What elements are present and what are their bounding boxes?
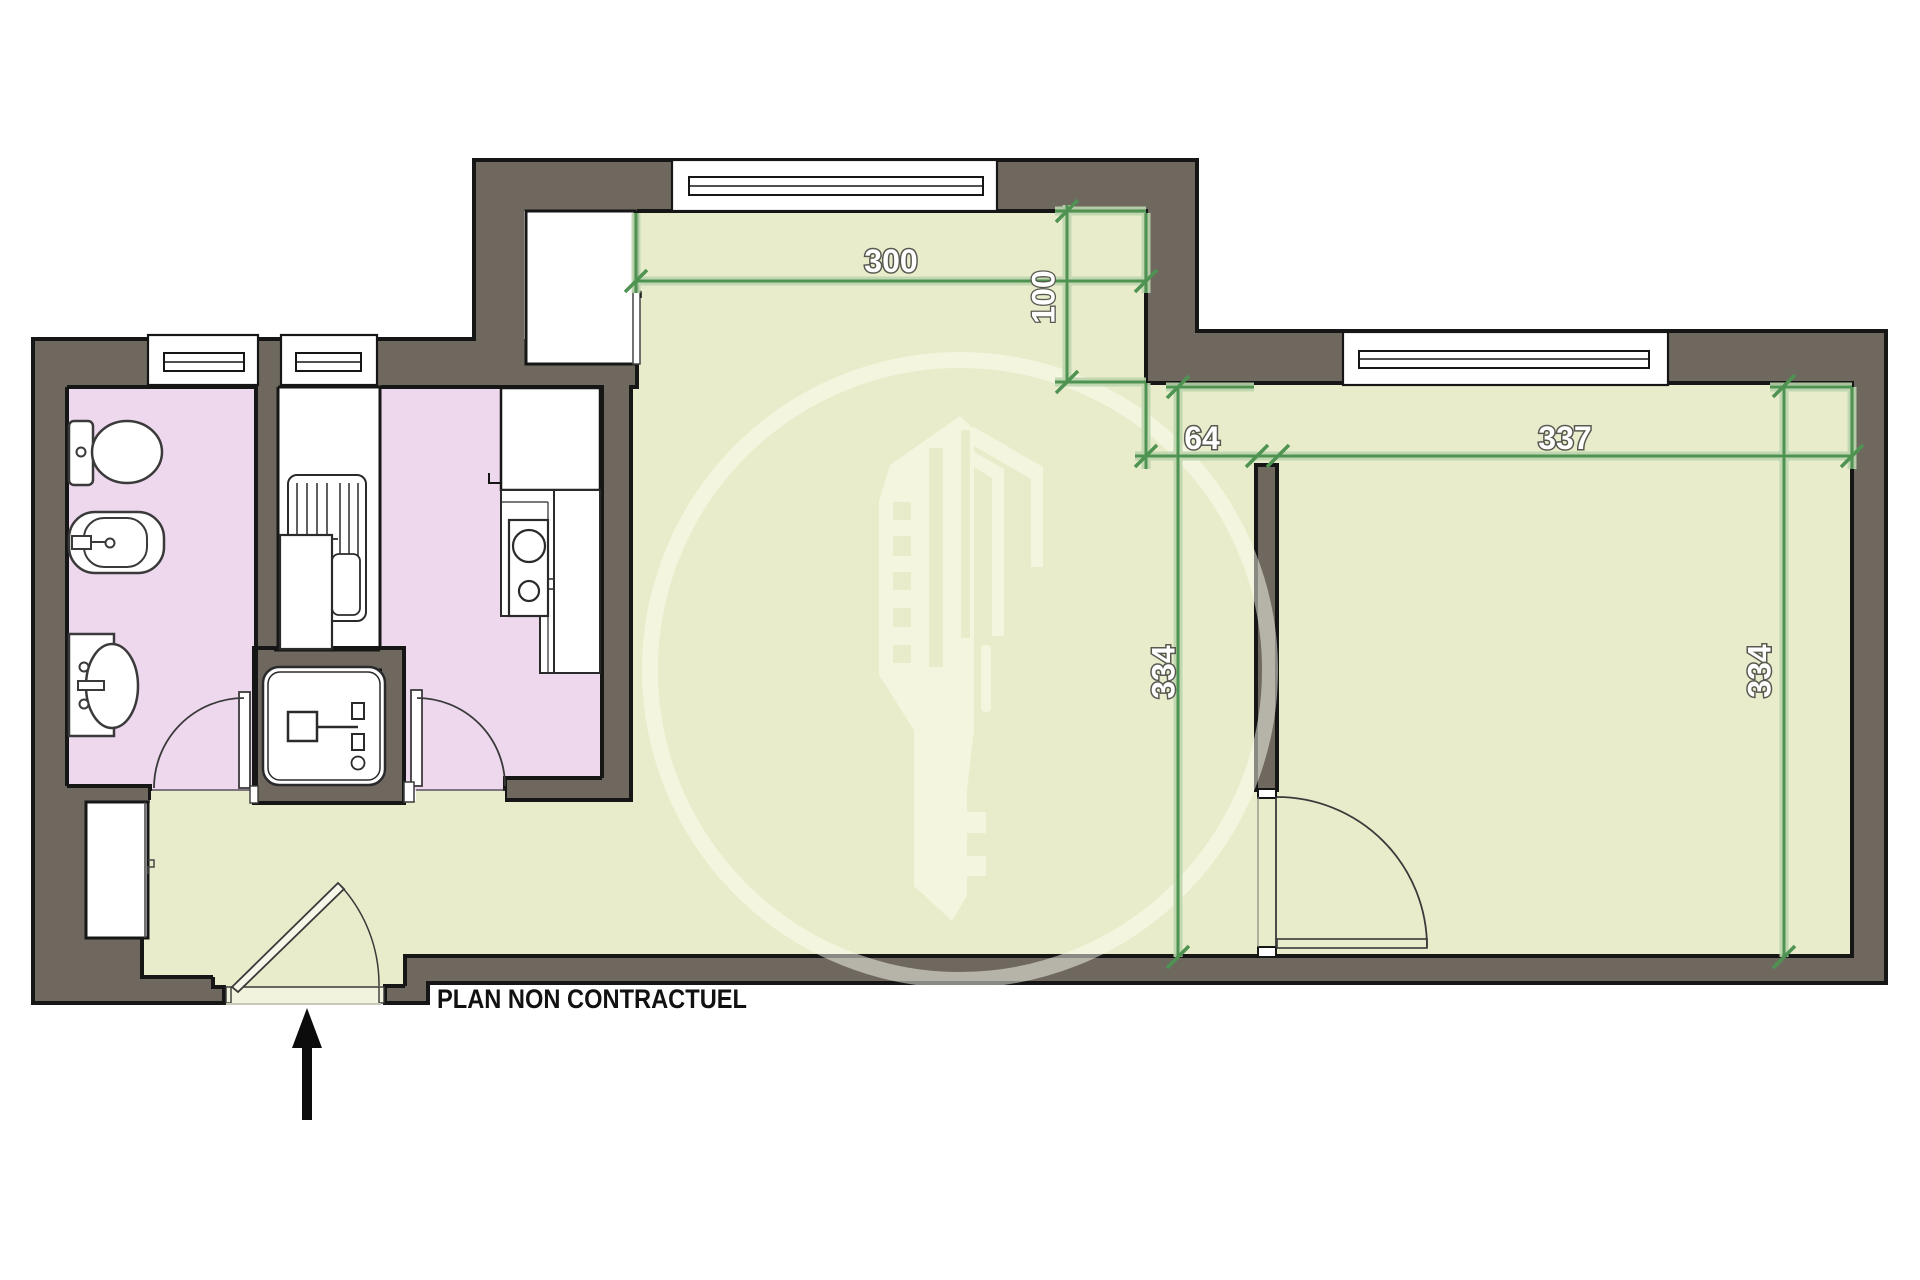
svg-text:PLAN NON CONTRACTUEL: PLAN NON CONTRACTUEL — [437, 984, 747, 1014]
svg-text:100: 100 — [1025, 270, 1061, 323]
svg-text:300: 300 — [864, 243, 917, 279]
svg-text:64: 64 — [1184, 420, 1220, 456]
svg-text:337: 337 — [1538, 420, 1591, 456]
svg-text:334: 334 — [1145, 645, 1181, 699]
svg-text:334: 334 — [1741, 644, 1777, 698]
